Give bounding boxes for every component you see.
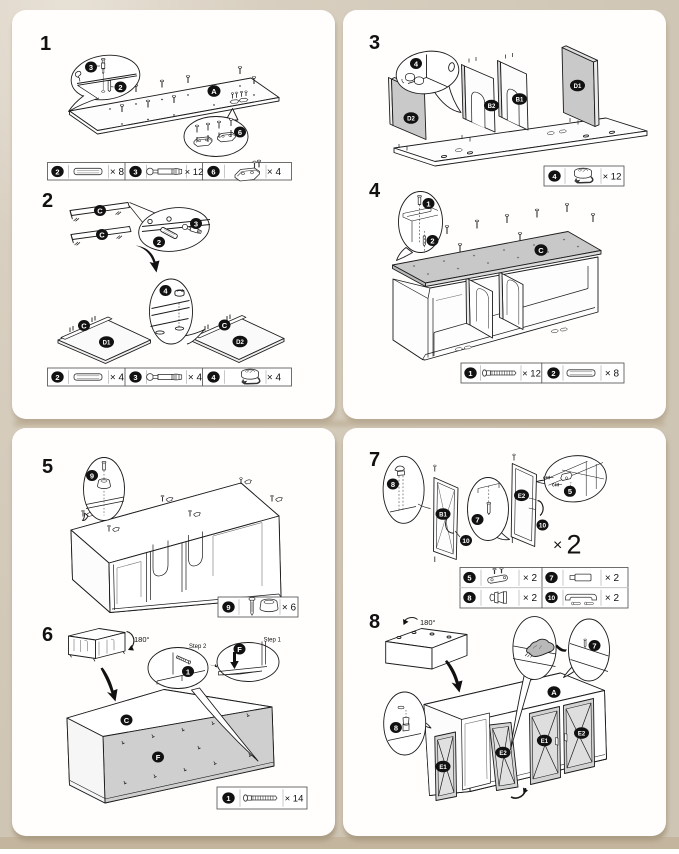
svg-text:E1: E1 [541, 739, 549, 745]
svg-text:× 14: × 14 [285, 794, 304, 805]
svg-text:A: A [211, 87, 217, 96]
svg-text:9: 9 [226, 603, 230, 612]
svg-text:× 4: × 4 [110, 373, 125, 384]
svg-text:2: 2 [430, 236, 434, 245]
svg-text:3: 3 [89, 63, 93, 72]
svg-text:D1: D1 [574, 84, 582, 90]
svg-text:F: F [237, 645, 242, 654]
svg-text:6: 6 [211, 167, 215, 176]
svg-text:× 8: × 8 [605, 369, 620, 380]
svg-text:E1: E1 [439, 765, 447, 771]
svg-text:3: 3 [133, 167, 137, 176]
svg-text:× 2: × 2 [523, 593, 538, 604]
svg-text:9: 9 [90, 471, 94, 480]
svg-text:× 4: × 4 [267, 373, 282, 384]
svg-text:C: C [538, 246, 544, 255]
svg-text:7: 7 [592, 641, 596, 650]
svg-text:D1: D1 [103, 341, 111, 347]
svg-text:1: 1 [426, 199, 430, 208]
svg-text:3: 3 [369, 32, 380, 54]
svg-text:6: 6 [238, 128, 242, 137]
svg-text:2: 2 [157, 238, 161, 247]
svg-text:Step 1: Step 1 [264, 638, 282, 644]
svg-text:×: × [553, 537, 562, 554]
svg-text:C: C [97, 206, 103, 215]
svg-text:B2: B2 [488, 104, 496, 110]
svg-text:B1: B1 [516, 98, 524, 104]
svg-text:2: 2 [118, 83, 122, 92]
svg-text:× 4: × 4 [188, 373, 203, 384]
svg-text:3: 3 [194, 219, 198, 228]
svg-text:× 12: × 12 [522, 369, 541, 380]
svg-text:Step 2: Step 2 [189, 644, 207, 650]
svg-text:E2: E2 [578, 732, 586, 738]
svg-text:8: 8 [369, 611, 380, 633]
svg-text:180°: 180° [134, 635, 150, 644]
svg-text:C: C [99, 230, 105, 239]
svg-text:2: 2 [55, 373, 59, 382]
svg-text:6: 6 [42, 624, 53, 646]
svg-text:× 12: × 12 [185, 167, 204, 178]
svg-text:8: 8 [467, 593, 471, 602]
svg-text:1: 1 [468, 369, 472, 378]
svg-text:7: 7 [549, 573, 553, 582]
svg-text:2: 2 [551, 369, 555, 378]
svg-text:× 6: × 6 [282, 603, 297, 614]
svg-text:2: 2 [55, 167, 59, 176]
svg-text:A: A [551, 688, 557, 697]
svg-text:1: 1 [40, 33, 51, 55]
svg-text:10: 10 [539, 522, 547, 529]
svg-text:8: 8 [391, 480, 395, 489]
svg-text:× 2: × 2 [605, 573, 620, 584]
svg-text:2: 2 [567, 530, 582, 560]
svg-text:3: 3 [133, 373, 137, 382]
svg-text:× 2: × 2 [523, 573, 538, 584]
svg-text:1: 1 [186, 667, 190, 676]
svg-text:10: 10 [548, 595, 556, 602]
svg-text:B1: B1 [439, 513, 447, 519]
svg-text:C: C [124, 716, 130, 725]
svg-text:4: 4 [369, 180, 381, 202]
svg-text:7: 7 [475, 515, 479, 524]
svg-text:D2: D2 [236, 340, 244, 346]
svg-text:8: 8 [394, 723, 398, 732]
svg-text:× 12: × 12 [603, 172, 622, 183]
svg-text:F: F [156, 753, 161, 762]
svg-text:5: 5 [467, 573, 471, 582]
svg-text:C: C [222, 321, 228, 330]
svg-text:5: 5 [42, 456, 53, 478]
svg-text:180°: 180° [420, 618, 436, 627]
svg-text:× 2: × 2 [605, 593, 620, 604]
svg-text:× 8: × 8 [110, 167, 125, 178]
svg-text:5: 5 [568, 487, 572, 496]
svg-text:7: 7 [369, 449, 380, 471]
svg-text:2: 2 [42, 190, 53, 212]
svg-text:× 4: × 4 [267, 167, 282, 178]
svg-text:10: 10 [462, 538, 470, 545]
svg-text:E2: E2 [499, 751, 507, 757]
svg-text:D2: D2 [407, 117, 415, 123]
svg-text:C: C [81, 321, 87, 330]
svg-text:1: 1 [226, 794, 230, 803]
svg-text:E2: E2 [518, 494, 526, 500]
